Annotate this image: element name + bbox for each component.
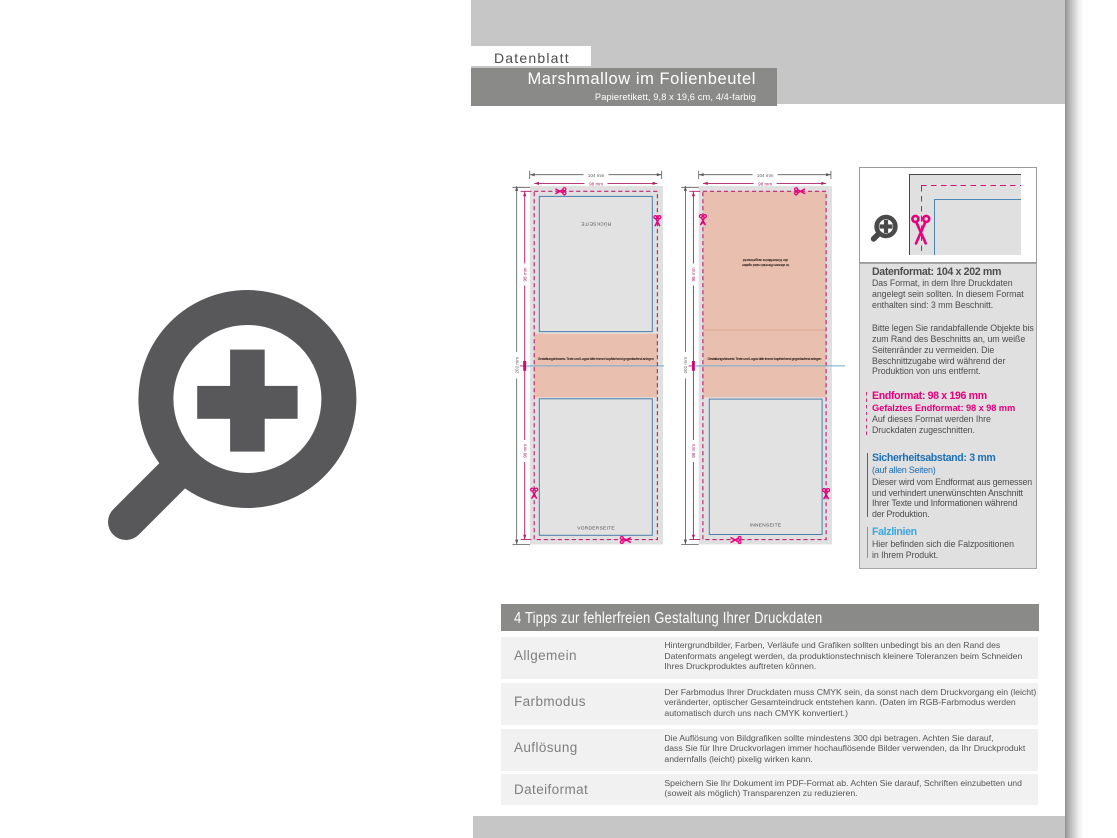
- svg-text:104 mm: 104 mm: [757, 173, 774, 178]
- svg-text:In diesem Bereich wird später: In diesem Bereich wird später: [741, 263, 789, 267]
- svg-text:202 mm: 202 mm: [514, 357, 519, 374]
- svg-text:die Klebefläche angebracht: die Klebefläche angebracht: [742, 258, 788, 262]
- svg-text:98 mm: 98 mm: [522, 267, 527, 281]
- svg-text:98 mm: 98 mm: [691, 267, 696, 281]
- svg-text:98 mm: 98 mm: [758, 181, 772, 186]
- svg-text:98 mm: 98 mm: [589, 181, 603, 186]
- svg-text:98 mm: 98 mm: [691, 444, 696, 458]
- svg-text:INNENSEITE: INNENSEITE: [750, 523, 782, 529]
- svg-text:VORDERSEITE: VORDERSEITE: [577, 526, 615, 532]
- svg-text:Gestaltungshinweis: Texte und: Gestaltungshinweis: Texte und Logos bitt…: [538, 357, 654, 361]
- svg-text:202 mm: 202 mm: [683, 357, 688, 374]
- svg-text:Gestaltungshinweis: Texte und: Gestaltungshinweis: Texte und Logos bitt…: [708, 357, 822, 361]
- svg-text:RÜCKSEITE: RÜCKSEITE: [581, 220, 611, 227]
- svg-text:98 mm: 98 mm: [522, 444, 527, 458]
- svg-text:104 mm: 104 mm: [588, 173, 605, 178]
